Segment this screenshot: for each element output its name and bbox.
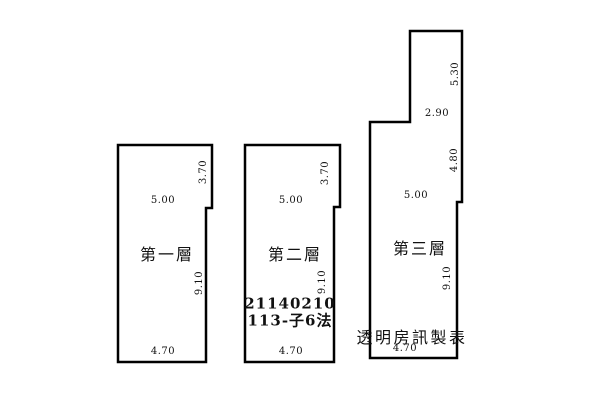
- floor2-dim-right: 9.10: [318, 270, 328, 294]
- floor2-dim-top: 5.00: [279, 196, 303, 206]
- watermark-text: 透明房訊製表: [356, 330, 467, 346]
- case-code: 113-子6法: [248, 314, 333, 329]
- case-number: 21140210: [244, 297, 336, 312]
- floor3-dim-mid-right: 4.80: [450, 148, 460, 172]
- floor3-dim-upper-right: 5.30: [451, 62, 461, 86]
- floor1-label: 第一層: [140, 247, 194, 263]
- floor3-label: 第三層: [393, 241, 447, 257]
- floor1-dim-bottom: 4.70: [151, 347, 175, 357]
- floor3-dim-notch: 2.90: [425, 109, 449, 119]
- floor2-dim-upper-right: 3.70: [321, 161, 331, 185]
- floor1-dim-right: 9.10: [195, 271, 205, 295]
- floor3-dim-top: 5.00: [404, 191, 428, 201]
- floor2-dim-bottom: 4.70: [279, 347, 303, 357]
- floor-plan-canvas: 5.00 3.70 第一層 9.10 4.70 5.00 3.70 第二層 9.…: [0, 0, 601, 401]
- floor3-dim-right: 9.10: [443, 266, 453, 290]
- floor1-dim-top: 5.00: [151, 196, 175, 206]
- floor2-label: 第二層: [268, 247, 322, 263]
- floor1-dim-upper-right: 3.70: [199, 160, 209, 184]
